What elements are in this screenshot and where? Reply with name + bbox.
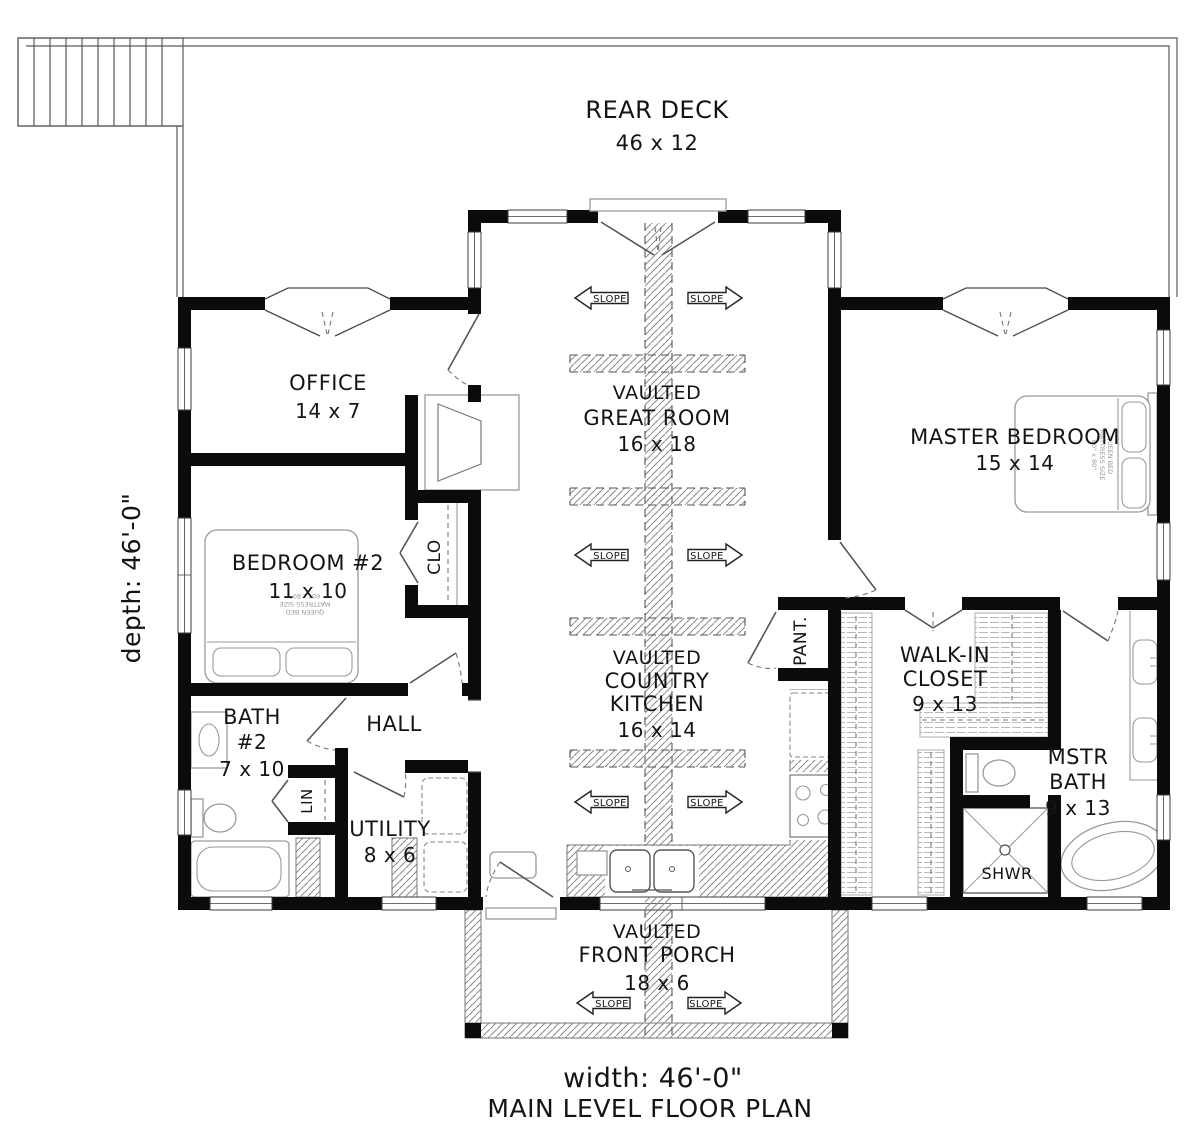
entry-bench <box>490 852 536 878</box>
dryer <box>424 842 467 892</box>
bay-window-master <box>943 288 1068 336</box>
slope-arrow-right: SLOPE <box>688 287 742 309</box>
bedroom2-door <box>410 653 462 683</box>
floor-plan-page: REAR DECK 46 x 12 <box>0 0 1200 1139</box>
walkin-closet-label: WALK-IN CLOSET 9 x 13 <box>900 643 990 716</box>
bath2-toilet <box>204 804 236 832</box>
utility-door <box>354 772 406 797</box>
bay-window-office <box>265 288 390 336</box>
master-sink-1 <box>1133 640 1157 684</box>
porch-vaulted: VAULTED <box>613 921 701 943</box>
bath2-name: BATH <box>223 705 281 729</box>
utility-label: UTILITY 8 x 6 <box>349 817 430 867</box>
front-porch-label: VAULTED FRONT PORCH 18 x 6 <box>578 921 735 995</box>
pantry-label: PANT. <box>791 616 811 666</box>
mbath-dims: 9 x 13 <box>1045 796 1111 820</box>
slope-label: SLOPE <box>690 294 724 305</box>
porch-name: FRONT PORCH <box>578 943 735 967</box>
bath2-label: BATH #2 7 x 10 <box>219 705 285 781</box>
master-vanity <box>1130 611 1157 780</box>
office-dims: 14 x 7 <box>295 399 361 423</box>
slope-arrow-left: SLOPE <box>575 287 628 309</box>
slope-label: SLOPE <box>593 798 627 809</box>
master-bedroom-dims: 15 x 14 <box>976 451 1055 475</box>
master-bath-door <box>1063 611 1118 641</box>
hall-opening <box>468 700 481 772</box>
master-toilet-tank <box>966 754 978 792</box>
slope-arrow-left: SLOPE <box>575 791 628 813</box>
slope-arrow-left: SLOPE <box>577 992 630 1014</box>
porch-dims: 18 x 6 <box>624 971 690 995</box>
slope-label: SLOPE <box>690 551 724 562</box>
walkin-line1: WALK-IN <box>900 643 990 667</box>
kitchen-vaulted: VAULTED <box>613 647 701 669</box>
walkin-dims: 9 x 13 <box>912 692 978 716</box>
bath2-dims: 7 x 10 <box>219 757 285 781</box>
mbath-line1: MSTR <box>1048 745 1109 769</box>
window <box>178 518 191 633</box>
window <box>468 232 481 288</box>
master-bedroom-name: MASTER BEDROOM <box>910 425 1120 449</box>
walkin-closet-doors <box>905 610 962 631</box>
window <box>600 897 765 910</box>
window <box>1157 795 1170 840</box>
great-room-vaulted: VAULTED <box>613 382 701 404</box>
walkin-line2: CLOSET <box>903 667 988 691</box>
rear-deck-label: REAR DECK <box>585 96 729 124</box>
window <box>178 348 191 410</box>
window <box>1157 330 1170 385</box>
bedroom2-dims: 11 x 10 <box>269 579 348 603</box>
slope-arrow-left: SLOPE <box>575 544 628 566</box>
kitchen-dims: 16 x 14 <box>618 718 697 742</box>
slope-arrow-right: SLOPE <box>688 992 741 1014</box>
window <box>748 210 805 223</box>
slope-label: SLOPE <box>593 551 627 562</box>
bed2-note-1: QUEEN BED <box>286 608 325 616</box>
slope-arrow-right: SLOPE <box>688 544 742 566</box>
slope-label: SLOPE <box>689 999 723 1010</box>
counter-appliance <box>577 851 607 875</box>
shower-label: SHWR <box>981 864 1032 883</box>
window <box>1157 523 1170 580</box>
kitchen-sink <box>605 846 699 897</box>
window <box>872 897 927 910</box>
window <box>508 210 567 223</box>
master-bedroom-door <box>840 542 876 598</box>
rear-deck: REAR DECK 46 x 12 <box>18 38 1177 297</box>
bath2-number: #2 <box>237 730 267 754</box>
slope-label: SLOPE <box>593 294 627 305</box>
window <box>210 897 272 910</box>
great-room-label: VAULTED GREAT ROOM 16 x 18 <box>583 382 730 456</box>
clo-bifold-door <box>400 522 418 583</box>
office-label: OFFICE 14 x 7 <box>289 371 367 423</box>
master-sink-2 <box>1133 718 1157 762</box>
depth-dimension: depth: 46'-0" <box>117 493 146 664</box>
lin-label: LIN <box>298 788 316 814</box>
clo-label: CLO <box>425 539 445 575</box>
office-name: OFFICE <box>289 371 367 395</box>
window <box>382 897 436 910</box>
plan-title: MAIN LEVEL FLOOR PLAN <box>487 1094 812 1123</box>
master-toilet <box>983 760 1015 786</box>
floor-plan-drawing: REAR DECK 46 x 12 <box>0 0 1200 1139</box>
slope-label: SLOPE <box>690 798 724 809</box>
slope-label: SLOPE <box>595 999 629 1010</box>
bath2-toilet-tank <box>191 799 203 837</box>
lin-bifold-door <box>272 780 288 822</box>
office-door <box>448 314 479 385</box>
window <box>828 232 841 288</box>
utility-name: UTILITY <box>349 817 430 841</box>
width-dimension: width: 46'-0" <box>563 1063 743 1094</box>
window <box>1087 897 1142 910</box>
bedroom2-name: BEDROOM #2 <box>232 551 384 575</box>
kitchen-label: VAULTED COUNTRY KITCHEN 16 x 14 <box>605 647 710 742</box>
porch-post-right <box>832 910 848 1023</box>
slope-arrow-right: SLOPE <box>688 791 742 813</box>
great-room-dims: 16 x 18 <box>618 432 697 456</box>
mbath-line2: BATH <box>1049 770 1107 794</box>
bath2-door <box>307 698 346 750</box>
pantry-door <box>748 612 776 668</box>
porch-post-left <box>465 910 481 1023</box>
utility-dims: 8 x 6 <box>364 843 417 867</box>
kitchen-country: COUNTRY <box>605 669 710 693</box>
master-bath-label: MSTR BATH 9 x 13 <box>1045 745 1111 820</box>
kitchen-name: KITCHEN <box>610 692 705 716</box>
fireplace <box>425 395 519 490</box>
window <box>178 790 191 835</box>
master-tub <box>1054 811 1173 901</box>
great-room-name: GREAT ROOM <box>583 406 730 430</box>
rear-deck-dims: 46 x 12 <box>616 131 699 155</box>
deck-stairs <box>18 38 183 126</box>
hall-label: HALL <box>366 712 422 736</box>
